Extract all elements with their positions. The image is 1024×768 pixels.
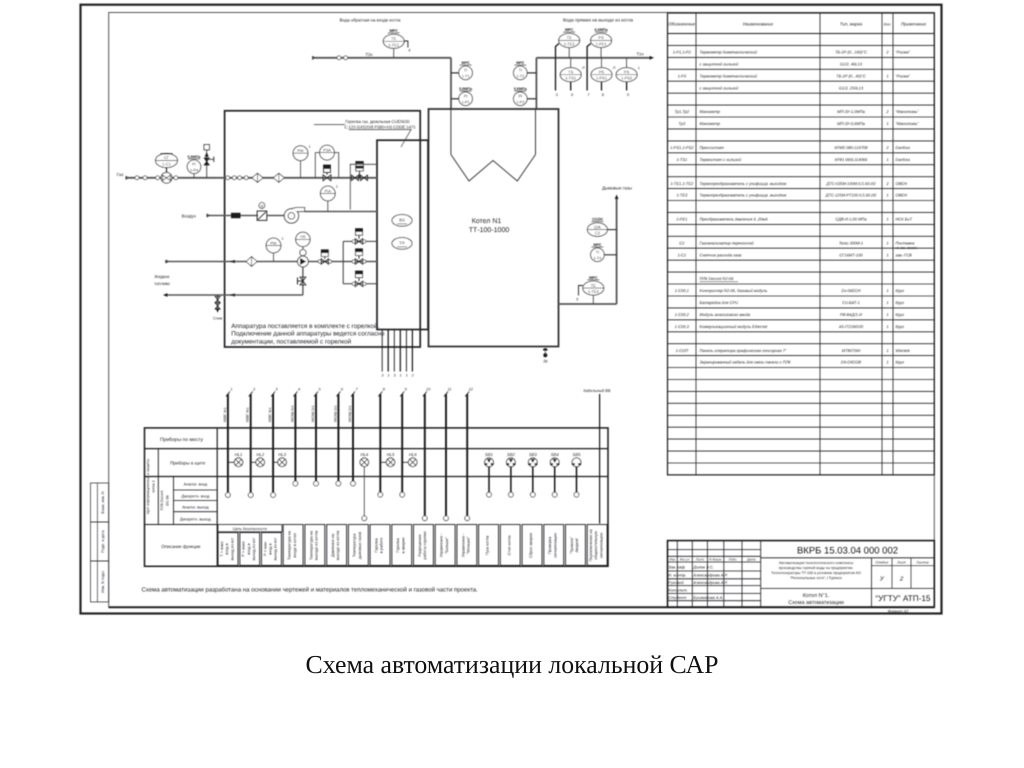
svg-text:Danfoss: Danfoss [896,157,911,162]
svg-text:НL1: НL1 [235,452,243,457]
svg-text:Круг: Круг [896,288,904,293]
svg-text:выход из кот: выход из кот [229,537,234,560]
svg-text:L: L [336,185,338,189]
svg-text:Testo 300М-1: Testo 300М-1 [839,240,863,245]
svg-text:выход из кот: выход из кот [273,537,278,560]
svg-text:G1/2, 250L13: G1/2, 250L13 [839,85,864,90]
svg-text:Александрова А.Р.: Александрова А.Р. [692,580,727,585]
svg-text:1-Р2: 1-Р2 [516,100,524,105]
svg-text:Аналог. вход: Аналог. вход [184,481,208,486]
svg-text:Воздух: Воздух [182,213,197,218]
svg-text:Вода обратная на входе котла: Вода обратная на входе котла [340,18,401,23]
svg-text:0,6МПа: 0,6МПа [459,87,473,91]
svg-text:L: L [638,66,640,70]
svg-text:МП-3У-0,6МПа: МП-3У-0,6МПа [837,121,865,126]
svg-text:1-С00,2: 1-С00,2 [675,312,690,317]
svg-text:НL3: НL3 [278,452,286,457]
svg-text:1-Р1,1-Р2: 1-Р1,1-Р2 [673,50,692,55]
svg-text:ТI: ТI [596,250,599,255]
svg-text:Т1н: Т1н [636,52,644,57]
svg-text:1-С00,3: 1-С00,3 [675,324,690,329]
svg-text:КВВГ 4х1: КВВГ 4х1 [268,407,272,422]
svg-text:КРМ5 080-124708: КРМ5 080-124708 [834,145,868,150]
svg-text:МКЭШ 2х1: МКЭШ 2х1 [290,405,294,422]
svg-text:РI: РI [464,94,468,99]
svg-text:“Росма”: “Росма” [896,73,911,78]
svg-text:1-РЕ1: 1-РЕ1 [596,41,608,46]
svg-text:Модуль аналогового ввода: Модуль аналогового ввода [700,312,751,317]
svg-text:Схема автоматизации локальной: Схема автоматизации локальной САР [306,650,719,679]
svg-text:1: 1 [886,157,888,162]
svg-text:Дата: Дата [746,557,756,561]
svg-text:Горелка газ. дизельная CUENOD: Горелка газ. дизельная CUENOD [345,119,409,124]
svg-text:А5-ГСОМ100: А5-ГСОМ100 [838,324,864,329]
svg-text:Сброс аварии: Сброс аварии [528,533,533,558]
svg-text:SВ1: SВ1 [485,452,493,457]
svg-text:МКЭШ 2х1: МКЭШ 2х1 [333,405,337,422]
svg-text:“Больше”: “Больше” [444,536,449,554]
svg-text:Лист: Лист [695,557,705,561]
svg-text:Круг: Круг [896,300,904,305]
svg-text:ВКРБ 15.03.04 000 002: ВКРБ 15.03.04 000 002 [797,545,898,556]
svg-text:ОВЕН: ОВЕН [896,181,907,186]
svg-text:Преобразователь давления 4..20: Преобразователь давления 4..20мА [700,217,769,222]
svg-text:Авария!: Авария! [574,538,579,552]
svg-text:1-С1: 1-С1 [677,252,686,257]
svg-text:Danfoss: Danfoss [896,145,911,150]
svg-text:Weintek: Weintek [896,348,911,353]
svg-text:Прессостат: Прессостат [700,145,725,150]
svg-text:L: L [309,144,311,148]
svg-text:Счетчик расхода газа: Счетчик расхода газа [700,252,743,257]
svg-text:Щит информационный и защиты: Щит информационный и защиты [146,459,150,514]
svg-text:Формат А2: Формат А2 [888,609,910,613]
svg-text:1: 1 [886,312,888,317]
svg-text:1: 1 [886,217,888,222]
svg-text:Кабельный ВВ: Кабельный ВВ [583,388,610,393]
svg-text:в работе: в работе [379,538,384,554]
svg-text:Бушманова А.А.: Бушманова А.А. [693,595,723,600]
svg-text:НСК БиТ: НСК БиТ [896,217,913,222]
svg-text:Котел N1: Котел N1 [472,218,502,225]
svg-text:МРС: МРС [516,61,524,65]
svg-text:СГ: СГ [164,155,170,160]
svg-text:1-РS2: 1-РS2 [621,76,633,81]
svg-text:Манометр: Манометр [700,109,721,114]
svg-text:котла 1: котла 1 [151,480,155,492]
svg-text:Газоанализатор переносной: Газоанализатор переносной [700,240,755,245]
svg-text:1-Т2: 1-Т2 [516,74,524,79]
svg-text:работы горелки: работы горелки [422,531,427,559]
svg-text:Термометр биметаллический: Термометр биметаллический [700,73,758,78]
svg-text:1-Р1: 1-Р1 [461,100,469,105]
svg-text:0,6МПа: 0,6МПа [514,87,528,91]
svg-text:Батарейка для СРU: Батарейка для СРU [700,300,739,305]
svg-text:ВS: ВS [399,218,405,223]
svg-text:Подп.: Подп. [729,557,738,561]
svg-text:Термостат с гильзой: Термостат с гильзой [700,157,742,162]
svg-text:МТ8070iН: МТ8070iН [842,348,861,353]
svg-text:выходе из котла: выходе из котла [335,530,340,560]
svg-text:Панель оператора графическая с: Панель оператора графическая сенсорная 7… [700,348,787,353]
svg-text:СГ16МТ-100: СГ16МТ-100 [839,252,863,257]
svg-text:МРС: МРС [565,28,574,32]
svg-text:1-ТS1: 1-ТS1 [565,76,577,81]
svg-text:зав.-ГСВ: зав.-ГСВ [895,252,913,257]
svg-text:1: 1 [886,360,888,365]
svg-text:1-ТЕ3: 1-ТЕ3 [676,193,688,198]
svg-text:Руковод.: Руковод. [668,580,684,585]
svg-text:Л: Л [612,66,616,70]
svg-text:3: 3 [394,374,396,378]
svg-text:L: L [282,237,284,241]
svg-text:SВ3: SВ3 [529,452,538,457]
svg-text:КР81 060L114066: КР81 060L114066 [835,157,868,162]
svg-text:ПЛК Decont: ПЛК Decont [160,491,164,510]
svg-text:выход из кот: выход из кот [251,537,256,560]
svg-text:МКЭШ 2х1: МКЭШ 2х1 [348,405,352,422]
svg-text:Н. контр.: Н. контр. [668,573,686,578]
svg-text:N докум.: N докум. [709,557,722,561]
svg-text:Тр3: Тр3 [678,121,686,126]
svg-text:РIА: РIА [297,148,304,153]
svg-text:1: 1 [886,324,888,329]
svg-text:11: 11 [448,388,452,392]
svg-text:0,6МПа: 0,6МПа [188,155,202,159]
svg-text:РS: РS [624,69,630,74]
svg-text:Газ: Газ [117,172,124,177]
svg-text:Подп. и дата: Подп. и дата [101,529,105,552]
svg-text:Инв. N подл.: Инв. N подл. [101,570,105,592]
svg-text:ТТ-100-1000: ТТ-100-1000 [469,227,510,234]
svg-text:1: 1 [400,374,402,378]
svg-text:2: 2 [899,576,904,583]
svg-text:1-Р3: 1-Р3 [678,73,687,78]
svg-text:РI: РI [518,94,522,99]
svg-text:ПЛК Decont R2-06: ПЛК Decont R2-06 [700,276,735,281]
svg-text:1: 1 [886,348,888,353]
svg-text:Вода прямая на выходе из котла: Вода прямая на выходе из котла [563,18,633,23]
svg-text:Описание функции: Описание функции [161,544,200,549]
svg-text:Dх-06ЕСН: Dх-06ЕСН [841,288,860,293]
svg-text:Изм: Изм [669,557,676,561]
svg-text:1-ТS1: 1-ТS1 [676,157,687,162]
svg-text:СДВ-И-1,00 МПа: СДВ-И-1,00 МПа [835,217,867,222]
svg-text:1-РЕ1: 1-РЕ1 [676,217,687,222]
svg-text:Круг: Круг [896,360,904,365]
svg-text:Т2н: Т2н [365,52,373,57]
svg-text:1: 1 [886,252,888,257]
svg-text:РВ-8АД/1-И: РВ-8АД/1-И [840,312,862,317]
svg-text:ОВЕН: ОВЕН [896,193,907,198]
svg-text:Наименование: Наименование [743,22,774,27]
svg-text:производства горячей воды на п: производства горячей воды на предприятии… [779,566,854,570]
svg-text:Приборы в щите: Приборы в щите [170,461,206,466]
svg-text:с защитной гильзой: с защитной гильзой [700,62,739,67]
svg-text:1-СОП: 1-СОП [676,348,689,353]
svg-text:Котел N°1.: Котел N°1. [803,593,829,599]
svg-text:ТI: ТI [464,68,467,73]
svg-text:Тр1,Тр2: Тр1,Тр2 [674,109,689,114]
svg-text:DС-06: DС-06 [165,495,169,505]
svg-text:1-ТЕ3: 1-ТЕ3 [588,289,600,294]
svg-text:4: 4 [298,388,300,392]
svg-text:0,6МПа: 0,6МПа [594,28,608,32]
svg-text:Кол.: Кол. [884,23,891,27]
svg-text:“Меньше”: “Меньше” [466,536,471,554]
svg-text:Дискретн. выход: Дискретн. выход [180,516,211,521]
svg-text:РI: РI [192,162,196,167]
svg-text:Др: Др [544,359,548,363]
svg-text:ДТС-125М-РТ100.0,5.60.И2: ДТС-125М-РТ100.0,5.60.И2 [825,193,878,198]
svg-text:Круг: Круг [896,324,904,329]
svg-text:выходе из котла: выходе из котла [314,530,319,560]
svg-text:Термопреобразователь с унифици: Термопреобразователь с унифицир. выходом [700,181,787,186]
svg-text:G1/2, 46L13: G1/2, 46L13 [840,62,863,67]
svg-text:Термометр биметаллический: Термометр биметаллический [700,50,758,55]
svg-text:Стадия: Стадия [875,560,888,564]
svg-text:НL6: НL6 [409,452,417,457]
svg-text:1-Т1: 1-Т1 [462,74,470,79]
svg-text:Студент: Студент [668,595,687,600]
svg-text:ТБ-2Р (0...160)°С: ТБ-2Р (0...160)°С [835,50,867,55]
svg-text:ТR: ТR [399,241,405,246]
svg-text:Кол.уч: Кол.уч [680,557,690,561]
svg-text:МРС: МРС [589,276,598,280]
svg-text:С.120 GX520/8 Р380+Н3 СОDЕ 147: С.120 GX520/8 Р380+Н3 СОDЕ 1471 [344,125,416,130]
svg-text:Экранированный кабель для связ: Экранированный кабель для связи панели с… [700,360,792,365]
svg-text:Аппаратура поставляется в комп: Аппаратура поставляется в комплекте с го… [231,323,379,330]
svg-text:1: 1 [388,374,390,378]
svg-text:ТI: ТI [519,68,522,73]
svg-text:документации, поставляемой с г: документации, поставляемой с горелкой [231,338,351,345]
svg-text:1-ТЕ2: 1-ТЕ2 [564,41,576,46]
svg-text:МРС: МРС [593,243,601,247]
svg-text:МРС: МРС [390,29,399,33]
svg-text:Автоматизация технологического: Автоматизация технологического комплекса [779,561,853,565]
svg-text:Долев Э.С.: Долев Э.С. [692,564,714,569]
svg-text:1-ТЕ1: 1-ТЕ1 [388,42,400,47]
svg-text:Зав. каф.: Зав. каф. [668,564,686,569]
svg-text:Коммуникационный модуль Ethern: Коммуникационный модуль Ethernet [700,324,769,329]
svg-text:QIА: QIА [594,224,601,229]
svg-text:“УГТУ” АТП-15: “УГТУ” АТП-15 [875,594,931,603]
svg-text:“Манотомь”: “Манотомь” [896,109,920,114]
svg-text:сигнализацию: сигнализацию [598,533,603,559]
svg-text:ТЕ: ТЕ [567,35,572,40]
svg-text:РS: РS [598,35,604,40]
svg-text:Примечание: Примечание [901,22,927,27]
svg-text:Александрова А.Р.: Александрова А.Р. [692,573,727,578]
svg-text:1: 1 [406,374,408,378]
svg-text:3: 3 [382,374,384,378]
svg-text:Жидкое: Жидкое [154,274,170,279]
svg-text:Аналог. выход: Аналог. выход [182,504,209,509]
svg-text:ТS: ТS [568,69,573,74]
svg-text:РIА: РIА [325,188,332,193]
svg-text:МКЭШ 2х1: МКЭШ 2х1 [311,405,315,422]
svg-text:Поставка: Поставка [896,240,916,245]
svg-text:НL2: НL2 [256,452,264,457]
svg-text:с защитной гильзой: с защитной гильзой [700,85,739,90]
svg-text:дымовых газов: дымовых газов [357,532,362,559]
svg-text:1: 1 [886,288,888,293]
svg-text:ДТС-035М-100М.0,5.60.И2: ДТС-035М-100М.0,5.60.И2 [825,181,876,186]
svg-text:1-РS1: 1-РS1 [596,76,608,81]
svg-text:Схема автоматизации разработан: Схема автоматизации разработана на основ… [142,587,479,594]
svg-text:Манометр: Манометр [700,121,721,126]
svg-text:М: М [261,204,264,208]
svg-text:сигнализации: сигнализации [552,533,557,558]
svg-text:Дымовые газы: Дымовые газы [602,186,632,191]
svg-text:МП-3У-1,0МПа: МП-3У-1,0МПа [837,109,865,114]
svg-text:1: 1 [886,73,888,78]
svg-text:Контроллер R2-06, базовый моду: Контроллер R2-06, базовый модуль [700,288,768,293]
svg-text:С2: С2 [595,231,601,236]
svg-text:1-Р4: 1-Р4 [190,168,199,173]
svg-text:“Манотомь”: “Манотомь” [896,121,920,126]
svg-text:1-РS1,1-РS2: 1-РS1,1-РS2 [670,145,694,150]
svg-text:Теплогенераторы ТТ-100 в услов: Теплогенераторы ТТ-100 в условиях предпр… [771,571,861,575]
svg-text:РS: РS [599,69,605,74]
svg-text:“Росма”: “Росма” [896,50,911,55]
svg-text:КВВГ 4х1: КВВГ 4х1 [223,407,227,422]
svg-text:НL4: НL4 [360,452,368,457]
svg-text:Взам. инв. N: Взам. инв. N [101,491,105,513]
svg-text:1: 1 [886,193,888,198]
svg-text:ТЕ: ТЕ [591,283,596,288]
svg-text:SВ4: SВ4 [551,452,560,457]
svg-text:D9-D9СОВ: D9-D9СОВ [841,360,862,365]
svg-text:МРС: МРС [462,61,470,65]
svg-text:топливо: топливо [154,281,170,286]
svg-text:1: 1 [230,388,232,392]
svg-text:в аварии: в аварии [400,537,405,553]
svg-text:Пуск котла: Пуск котла [485,535,490,555]
svg-text:С2: С2 [679,240,685,245]
svg-text:ТБ-2Р (0...40)°С: ТБ-2Р (0...40)°С [836,73,866,78]
svg-text:Термопреобразователь с унифици: Термопреобразователь с унифицир. выходом [700,193,787,198]
svg-text:1-С00,1: 1-С00,1 [675,288,689,293]
svg-text:1: 1 [886,300,888,305]
svg-text:СU-БАТ-1: СU-БАТ-1 [842,300,860,305]
svg-text:входе в котел: входе в котел [292,533,297,558]
svg-text:Листов: Листов [915,560,929,564]
svg-text:Тип, марка: Тип, марка [840,22,863,27]
svg-text:НL5: НL5 [387,452,395,457]
svg-text:1-Т4: 1-Т4 [593,256,602,261]
svg-text:Консульт.: Консульт. [668,587,687,592]
svg-text:Л: Л [581,66,585,70]
svg-text:по зак. заказч.: по зак. заказч. [896,246,919,250]
svg-text:SВ5: SВ5 [573,452,582,457]
svg-text:1: 1 [886,121,888,126]
svg-text:2: 2 [411,374,414,378]
svg-text:Схема автоматизации: Схема автоматизации [788,600,844,606]
svg-text:СО2Н: СО2Н [592,218,603,222]
svg-text:Лист: Лист [896,560,906,564]
svg-text:Круг: Круг [896,312,904,317]
svg-text:Приборы по месту: Приборы по месту [160,437,204,443]
svg-text:4: 4 [408,49,410,53]
svg-text:1: 1 [886,240,888,245]
svg-text:1-ТЕ1,1-ТЕ2: 1-ТЕ1,1-ТЕ2 [670,181,694,186]
svg-text:SВ2: SВ2 [507,452,516,457]
svg-text:ТЕ: ТЕ [391,36,396,41]
svg-text:“Региональные сети”, г.Туринск: “Региональные сети”, г.Туринск [790,576,842,580]
svg-text:Обозначение: Обозначение [668,22,695,27]
svg-text:Стоп котла: Стоп котла [506,535,511,556]
svg-text:РSА: РSА [323,147,331,152]
svg-text:Подключение данной аппаратуры: Подключение данной аппаратуры ведется со… [231,331,385,338]
svg-text:РIА: РIА [270,240,277,245]
svg-text:КВВГ 4х1: КВВГ 4х1 [246,407,250,422]
svg-text:Цепь безопасности: Цепь безопасности [233,527,267,531]
svg-text:Дискретн. вход: Дискретн. вход [181,494,209,499]
svg-text:1-С1: 1-С1 [162,162,171,167]
svg-text:НS: НS [300,234,306,239]
svg-text:Слив: Слив [213,317,222,321]
